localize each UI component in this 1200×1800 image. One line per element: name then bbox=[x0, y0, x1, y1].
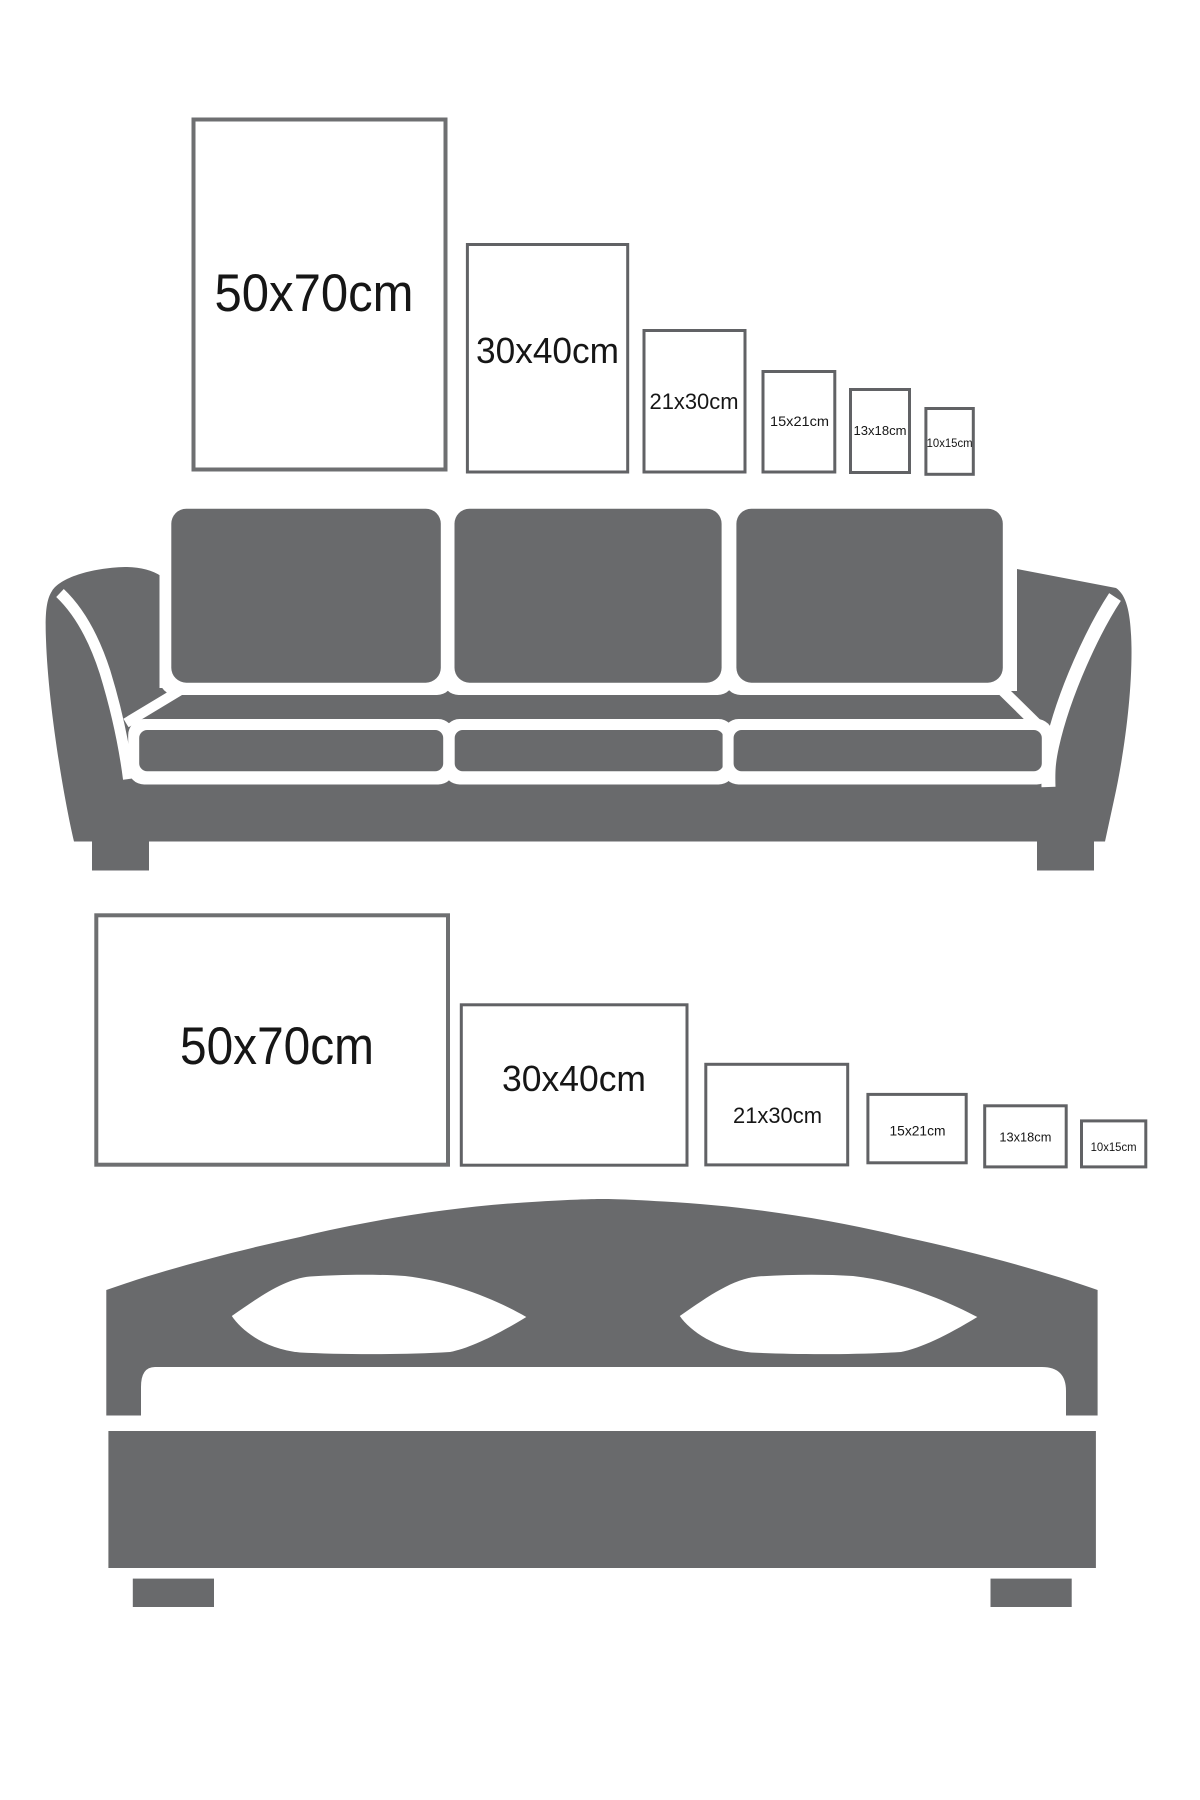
svg-text:21x30cm: 21x30cm bbox=[733, 1103, 822, 1128]
svg-text:30x40cm: 30x40cm bbox=[502, 1058, 646, 1099]
svg-text:30x40cm: 30x40cm bbox=[476, 330, 619, 371]
svg-text:15x21cm: 15x21cm bbox=[890, 1124, 946, 1139]
svg-text:50x70cm: 50x70cm bbox=[215, 264, 414, 323]
svg-text:15x21cm: 15x21cm bbox=[770, 414, 829, 429]
svg-text:13x18cm: 13x18cm bbox=[999, 1130, 1051, 1145]
svg-text:21x30cm: 21x30cm bbox=[650, 389, 739, 414]
svg-text:10x15cm: 10x15cm bbox=[927, 438, 973, 450]
svg-text:50x70cm: 50x70cm bbox=[180, 1017, 374, 1076]
svg-text:13x18cm: 13x18cm bbox=[854, 423, 907, 438]
svg-text:10x15cm: 10x15cm bbox=[1091, 1142, 1137, 1154]
